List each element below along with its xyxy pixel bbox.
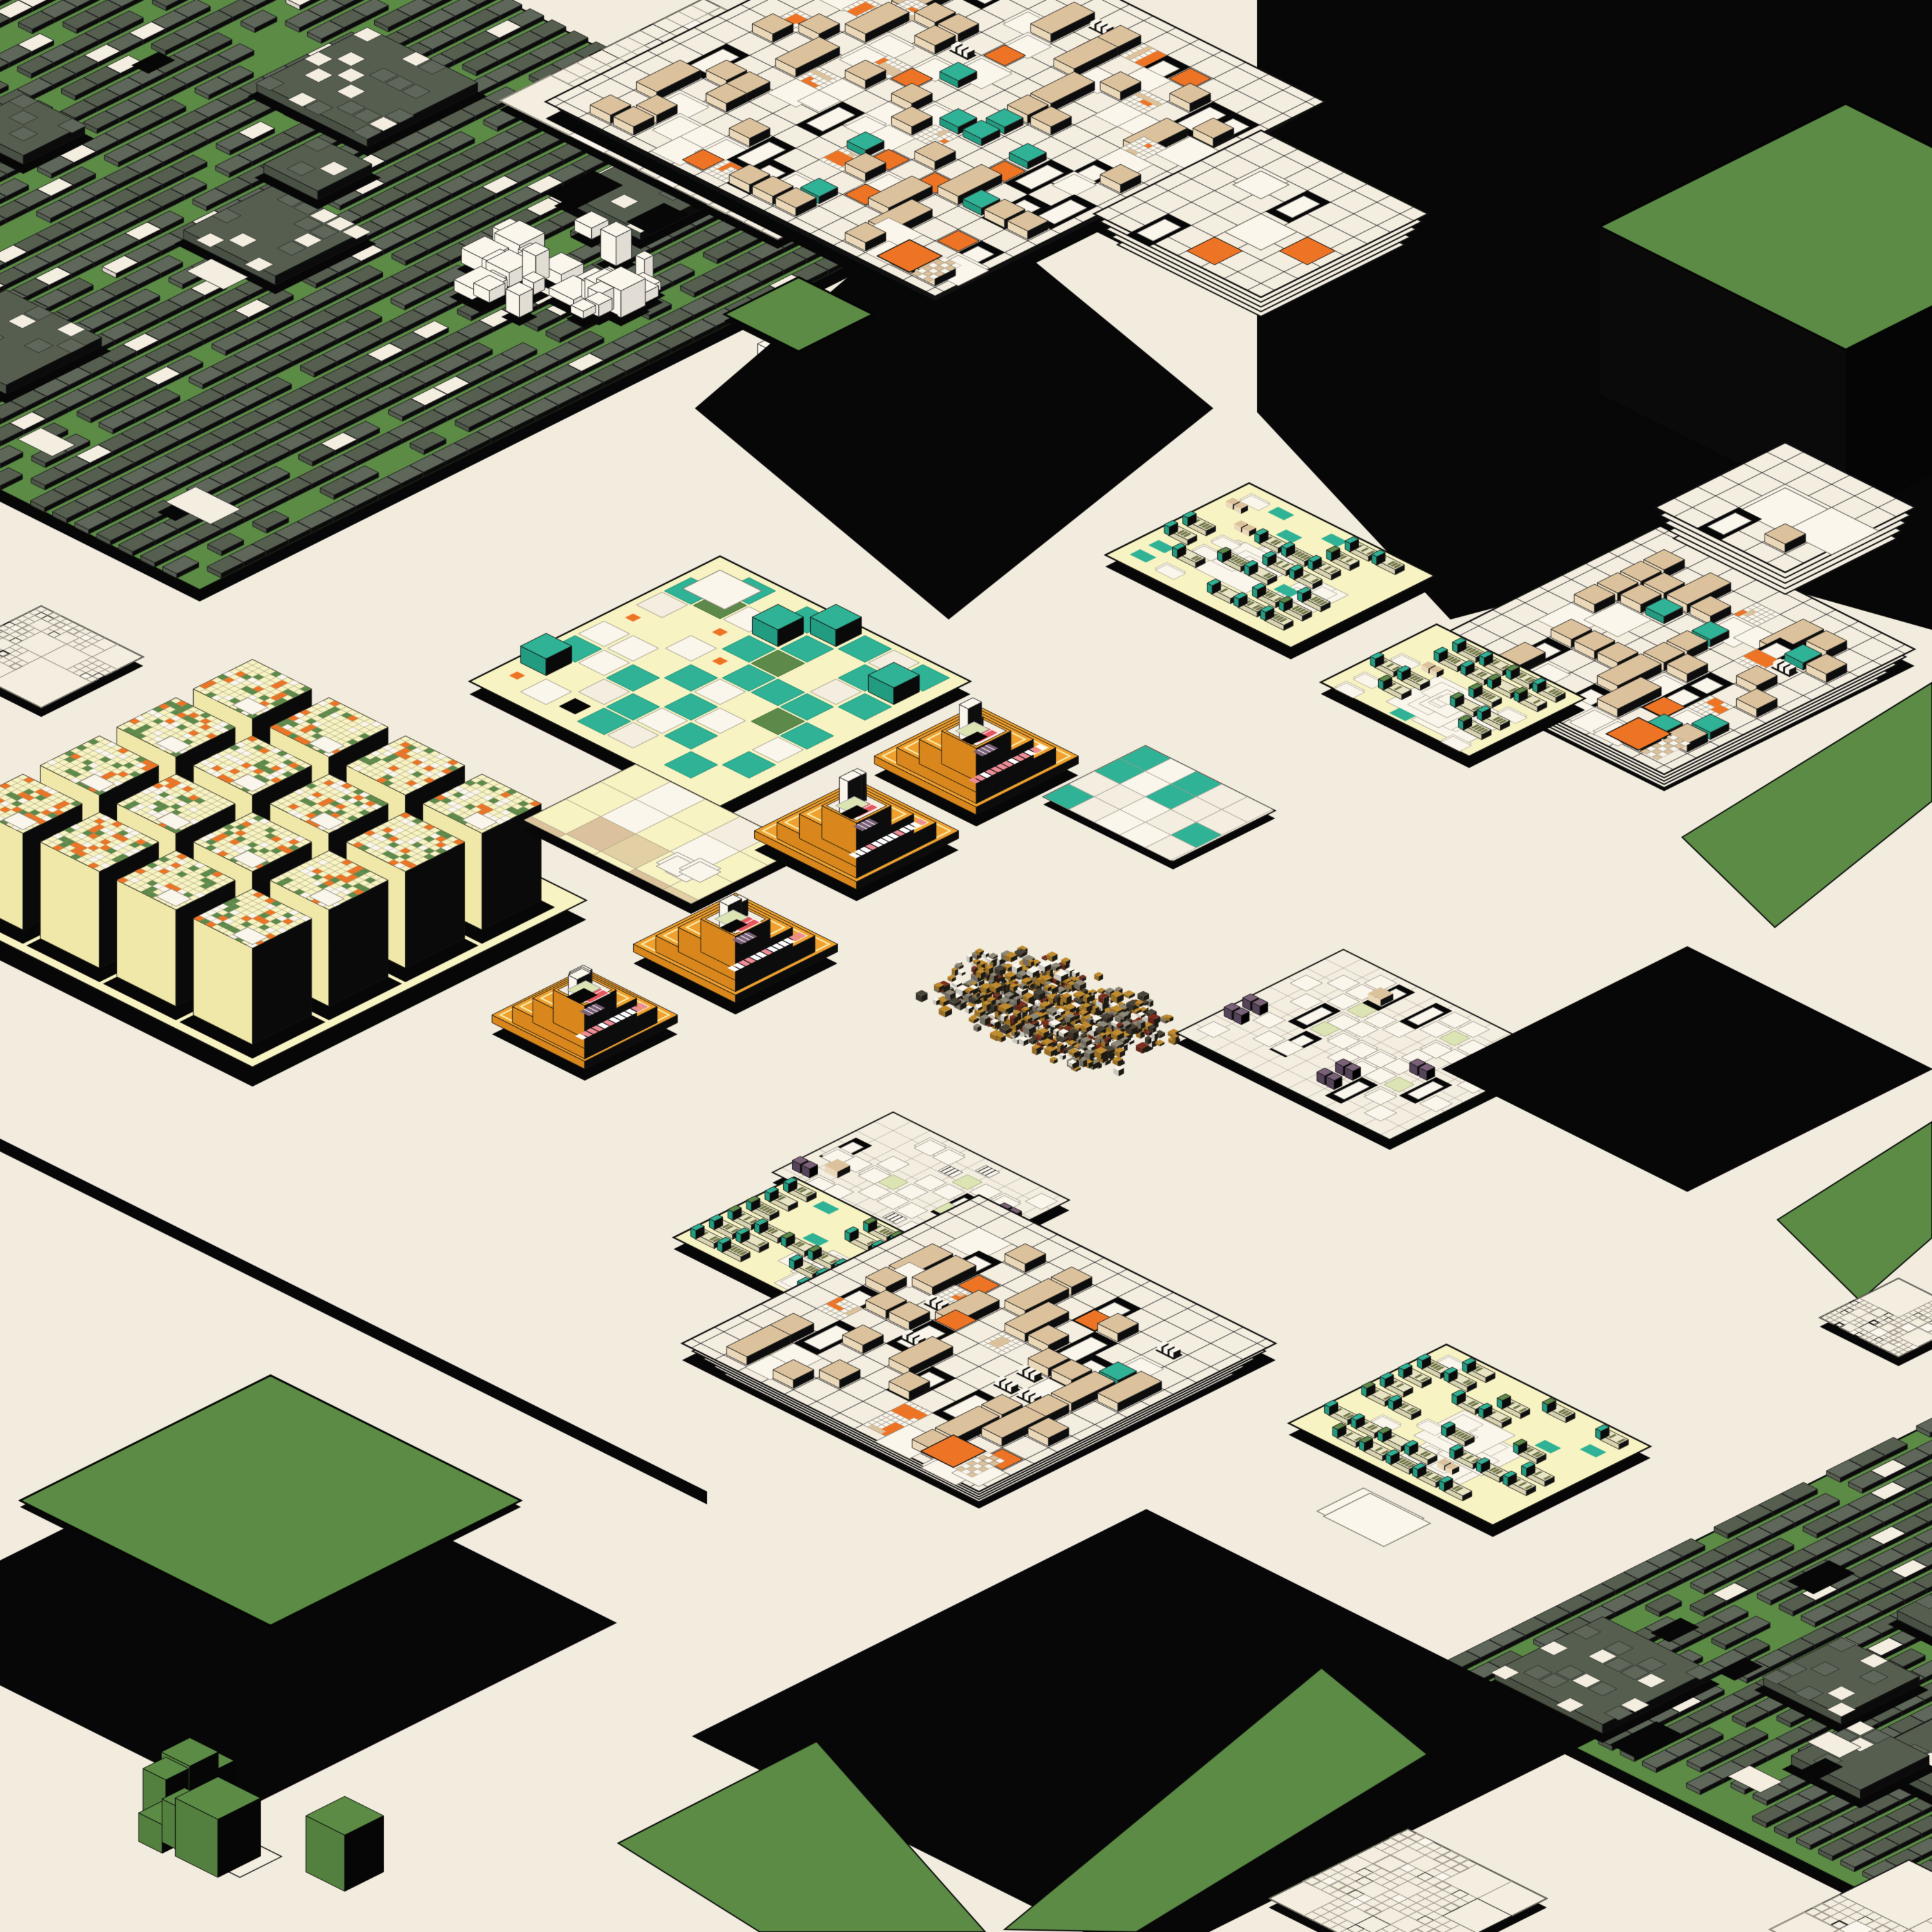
artwork-canvas (0, 0, 1932, 1932)
isometric-city-artwork (0, 0, 1932, 1932)
